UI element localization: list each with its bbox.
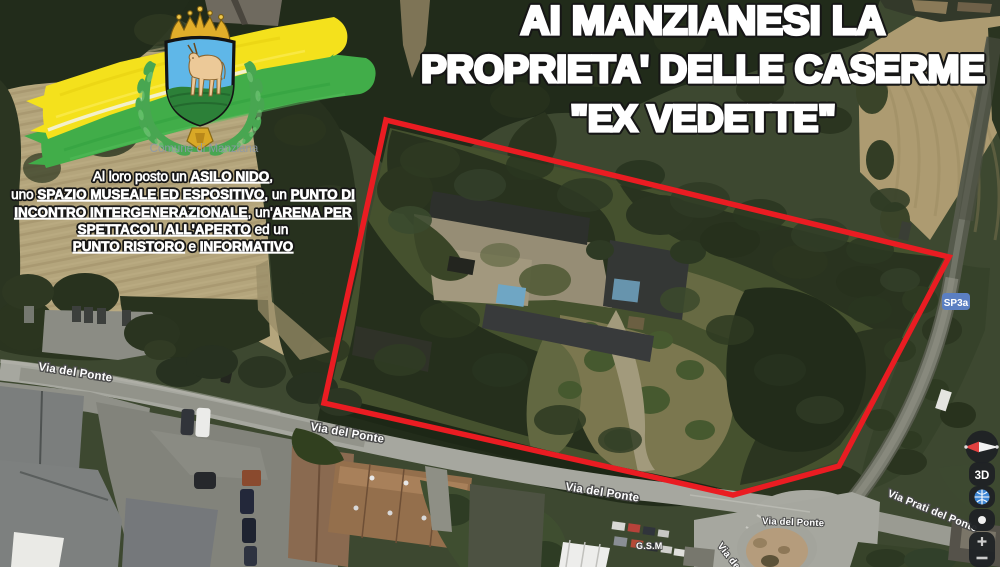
svg-text:uno SPAZIO MUSEALE ED ESPOSITI: uno SPAZIO MUSEALE ED ESPOSITIVO, un PUN… — [11, 187, 355, 202]
svg-text:Via del Ponte: Via del Ponte — [762, 516, 824, 529]
svg-text:3D: 3D — [975, 470, 990, 482]
svg-text:INCONTRO INTERGENERAZIONALE, u: INCONTRO INTERGENERAZIONALE, un'ARENA PE… — [14, 205, 352, 220]
svg-text:Al loro posto un ASILO NIDO,: Al loro posto un ASILO NIDO, — [93, 169, 273, 184]
svg-text:"EX VEDETTE": "EX VEDETTE" — [570, 98, 835, 139]
svg-text:PUNTO RISTORO e INFORMATIVO: PUNTO RISTORO e INFORMATIVO — [73, 239, 294, 254]
svg-text:Comune di Manziana: Comune di Manziana — [150, 143, 259, 155]
svg-text:AI MANZIANESI LA: AI MANZIANESI LA — [521, 0, 885, 43]
svg-text:SP3a: SP3a — [944, 298, 969, 309]
svg-text:G.S.M: G.S.M — [636, 541, 663, 551]
svg-text:PROPRIETA' DELLE CASERME: PROPRIETA' DELLE CASERME — [421, 49, 985, 91]
svg-text:SPETTACOLI ALL'APERTO ed un: SPETTACOLI ALL'APERTO ed un — [78, 222, 289, 237]
